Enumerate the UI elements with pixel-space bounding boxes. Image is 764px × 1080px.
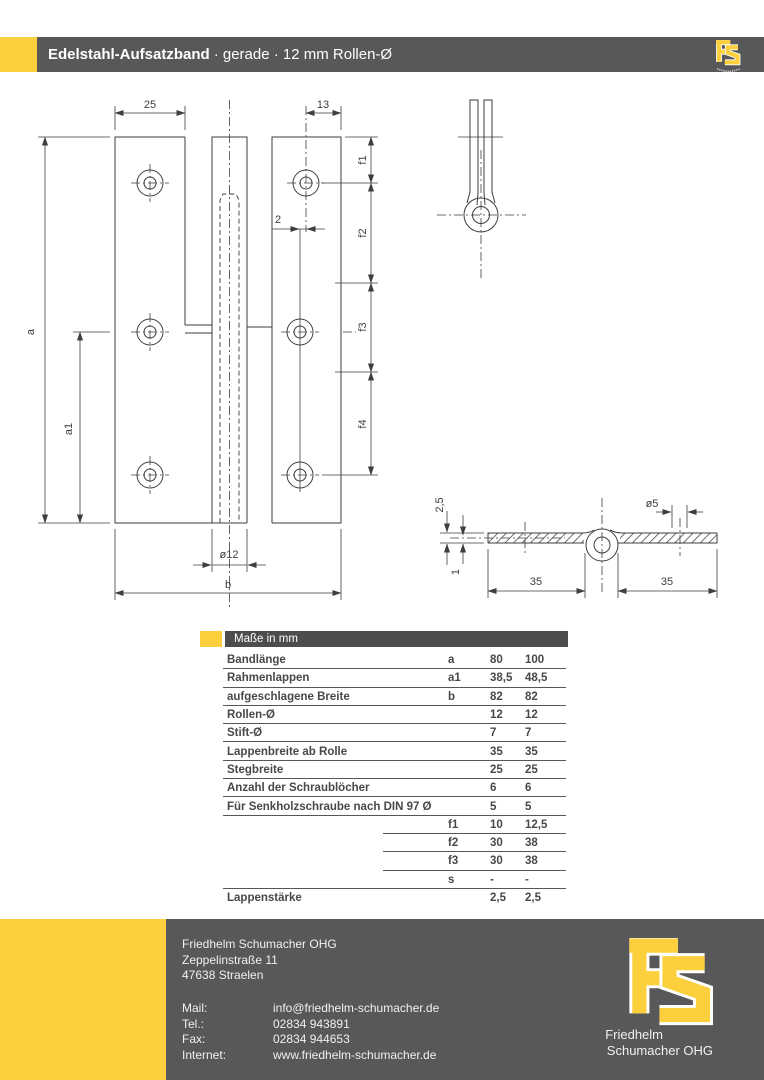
table-row: Stegbreite2525 xyxy=(223,761,568,779)
table-row: Für Senkholzschraube nach DIN 97 Ø55 xyxy=(223,797,568,815)
spec-table-header: Maße in mm xyxy=(200,631,568,647)
dim-label-2: 2 xyxy=(275,214,281,226)
dim-label-a: a xyxy=(25,328,37,335)
fax-value: 02834 944653 xyxy=(273,1032,350,1048)
dim-label-25: 25 xyxy=(144,99,156,111)
dim-label-a1: a1 xyxy=(63,423,75,435)
dim-label-b: b xyxy=(225,579,231,591)
contact-row: Fax:02834 944653 xyxy=(182,1032,439,1048)
knuckle-section-view xyxy=(437,100,526,278)
company-street: Zeppelinstraße 11 xyxy=(182,953,337,969)
front-view: 25 13 2 a a1 f1 f2 xyxy=(25,99,378,608)
table-row: aufgeschlagene Breiteb8282 xyxy=(223,688,568,706)
dim-label-offset: 1 xyxy=(450,569,462,575)
table-row: f23038 xyxy=(223,834,568,852)
dim-label-35-left: 35 xyxy=(530,576,542,588)
logo-text-line1: Friedhelm xyxy=(605,1027,663,1042)
dim-label-35-right: 35 xyxy=(661,576,673,588)
yellow-accent-footer xyxy=(0,919,166,1080)
dim-label-thickness: 2,5 xyxy=(434,497,446,512)
email-value: info@friedhelm-schumacher.de xyxy=(273,1001,439,1017)
table-row: Anzahl der Schraublöcher66 xyxy=(223,779,568,797)
table-row: Lappenstärke2,52,5 xyxy=(223,889,568,907)
spec-table-title: Maße in mm xyxy=(225,631,568,647)
yellow-accent xyxy=(200,631,222,647)
footer: Friedhelm Schumacher OHG Zeppelinstraße … xyxy=(0,919,764,1080)
logo-text-line2: Schumacher OHG xyxy=(607,1043,713,1058)
website-value: www.friedhelm-schumacher.de xyxy=(273,1048,436,1064)
contact-row: Tel.:02834 943891 xyxy=(182,1017,439,1033)
table-row: Rahmenlappena138,548,5 xyxy=(223,669,568,687)
dim-label-f2: f2 xyxy=(357,228,369,237)
contact-row: Internet:www.friedhelm-schumacher.de xyxy=(182,1048,439,1064)
table-row: f11012,5 xyxy=(223,816,568,834)
dim-label-pin-dia: ø5 xyxy=(646,498,659,510)
screw-holes-left xyxy=(131,164,169,494)
dim-label-f3: f3 xyxy=(357,322,369,331)
dim-label-f4: f4 xyxy=(357,419,369,428)
table-row: f33038 xyxy=(223,852,568,870)
contact-list: Mail:info@friedhelm-schumacher.de Tel.:0… xyxy=(182,1001,439,1063)
dim-label-f1: f1 xyxy=(357,155,369,164)
spec-table-rows: Bandlängea80100 Rahmenlappena138,548,5 a… xyxy=(223,651,568,907)
table-row: s-- xyxy=(223,871,568,889)
phone-value: 02834 943891 xyxy=(273,1017,350,1033)
spec-table: Maße in mm Bandlängea80100 Rahmenlappena… xyxy=(200,631,568,907)
technical-drawing: 25 13 2 a a1 f1 f2 xyxy=(0,0,764,625)
company-address: Friedhelm Schumacher OHG Zeppelinstraße … xyxy=(182,937,337,984)
table-row: Stift-Ø77 xyxy=(223,724,568,742)
footer-contact-panel: Friedhelm Schumacher OHG Zeppelinstraße … xyxy=(166,919,764,1080)
table-row: Bandlängea80100 xyxy=(223,651,568,669)
company-city: 47638 Straelen xyxy=(182,968,337,984)
screw-holes-right xyxy=(281,106,325,492)
fs-logo-large xyxy=(626,938,718,1026)
leaf-section-view: 2,5 1 ø5 35 35 xyxy=(434,497,717,598)
table-row: Lappenbreite ab Rolle3535 xyxy=(223,742,568,760)
company-name: Friedhelm Schumacher OHG xyxy=(182,937,337,953)
contact-row: Mail:info@friedhelm-schumacher.de xyxy=(182,1001,439,1017)
dim-label-13: 13 xyxy=(317,99,329,111)
datasheet-page: Edelstahl-Aufsatzband · gerade · 12 mm R… xyxy=(0,0,764,1080)
table-row: Rollen-Ø1212 xyxy=(223,706,568,724)
dim-label-roll-dia: ø12 xyxy=(220,549,239,561)
fs-monogram-icon xyxy=(629,946,704,1015)
